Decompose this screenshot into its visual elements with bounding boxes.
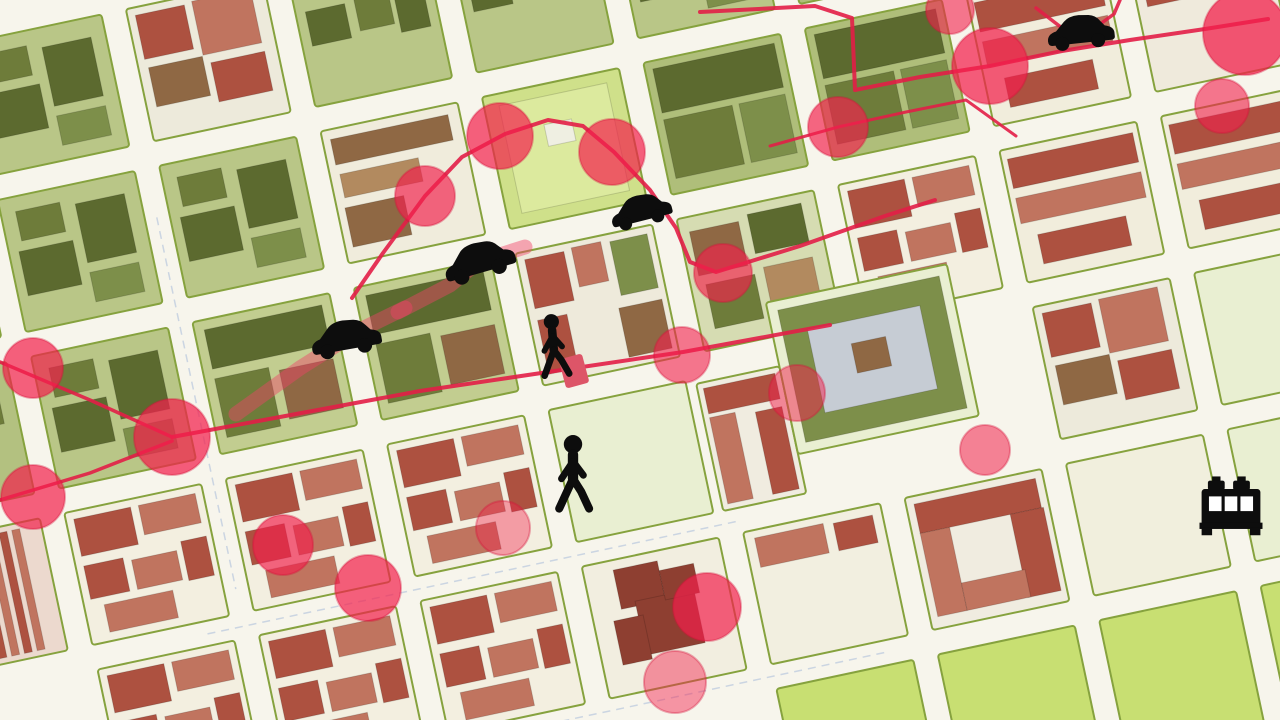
route-marker[interactable] — [467, 103, 533, 169]
city-block — [904, 469, 1069, 630]
building — [441, 324, 505, 384]
route-marker[interactable] — [579, 119, 645, 185]
route-marker[interactable] — [960, 425, 1010, 475]
route-marker[interactable] — [808, 97, 868, 157]
route-marker[interactable] — [673, 573, 741, 641]
route-marker[interactable] — [476, 501, 530, 555]
route-marker[interactable] — [952, 28, 1028, 104]
city-block — [1033, 278, 1198, 439]
tram-part — [1202, 528, 1213, 535]
route-marker[interactable] — [335, 555, 401, 621]
building — [851, 336, 891, 373]
route-marker[interactable] — [1195, 79, 1249, 133]
tram-part — [1240, 496, 1253, 511]
city-block — [387, 415, 552, 576]
tram-part — [1209, 496, 1222, 511]
map-canvas — [0, 0, 1280, 720]
tram-part — [1233, 481, 1250, 490]
tram-part — [1250, 528, 1261, 535]
block-ground — [743, 503, 908, 664]
route-marker[interactable] — [134, 399, 210, 475]
route-marker[interactable] — [769, 365, 825, 421]
building — [1042, 303, 1100, 357]
city-block — [743, 503, 908, 664]
route-marker[interactable] — [644, 651, 706, 713]
city-block — [643, 34, 808, 195]
route-marker[interactable] — [1, 465, 65, 529]
route-marker[interactable] — [654, 327, 710, 383]
tram-part — [1208, 481, 1225, 490]
building — [135, 5, 193, 59]
city-block — [999, 122, 1164, 283]
city-block — [0, 171, 163, 332]
stylized-city-map — [0, 0, 1280, 720]
building — [1098, 287, 1168, 353]
tram-part — [1225, 496, 1238, 511]
city-block — [159, 137, 324, 298]
route-marker[interactable] — [253, 515, 313, 575]
city-block — [64, 484, 229, 645]
building — [305, 4, 351, 47]
route-marker[interactable] — [395, 166, 455, 226]
route-marker[interactable] — [3, 338, 63, 398]
route-marker[interactable] — [694, 244, 752, 302]
